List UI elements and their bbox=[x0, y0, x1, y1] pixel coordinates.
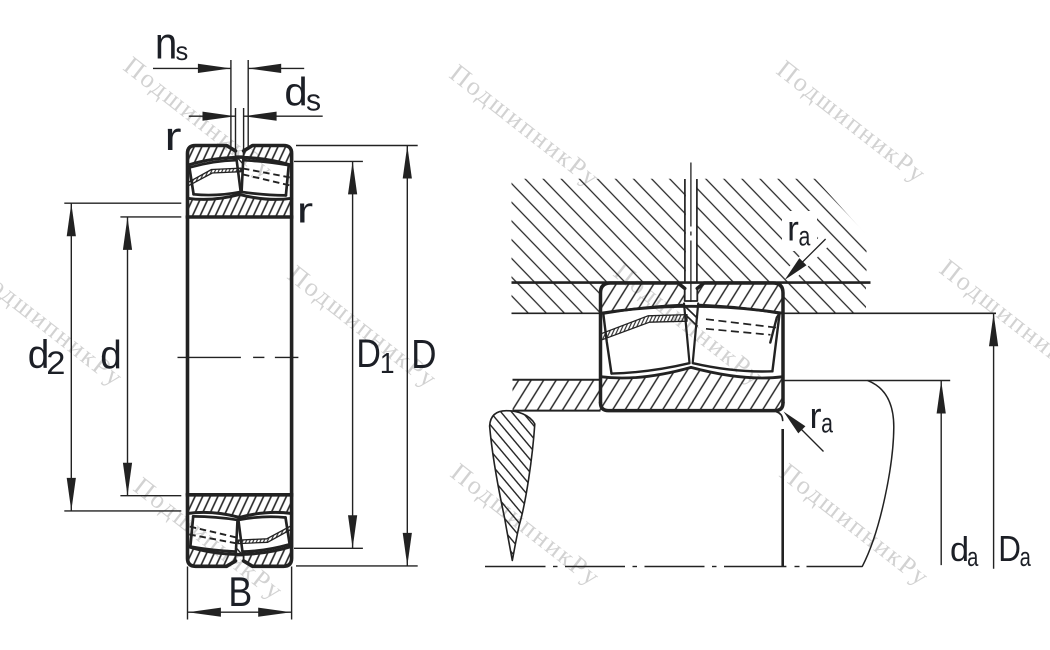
svg-text:r: r bbox=[164, 114, 181, 159]
svg-text:D: D bbox=[411, 333, 436, 378]
svg-text:r: r bbox=[297, 190, 313, 230]
svg-text:2: 2 bbox=[46, 346, 65, 382]
svg-text:n: n bbox=[155, 19, 177, 69]
svg-text:a: a bbox=[821, 409, 833, 439]
svg-text:B: B bbox=[228, 569, 252, 615]
svg-text:D: D bbox=[998, 530, 1021, 569]
svg-text:d: d bbox=[950, 531, 969, 569]
svg-text:a: a bbox=[1020, 542, 1032, 573]
svg-text:s: s bbox=[176, 38, 189, 66]
svg-text:r: r bbox=[787, 209, 799, 248]
svg-text:a: a bbox=[799, 222, 811, 252]
svg-text:s: s bbox=[306, 84, 321, 117]
svg-text:D: D bbox=[356, 330, 380, 375]
svg-text:d: d bbox=[284, 70, 307, 115]
svg-text:r: r bbox=[810, 395, 822, 436]
svg-text:a: a bbox=[967, 542, 979, 573]
svg-text:d: d bbox=[100, 333, 122, 378]
svg-text:1: 1 bbox=[380, 347, 395, 379]
